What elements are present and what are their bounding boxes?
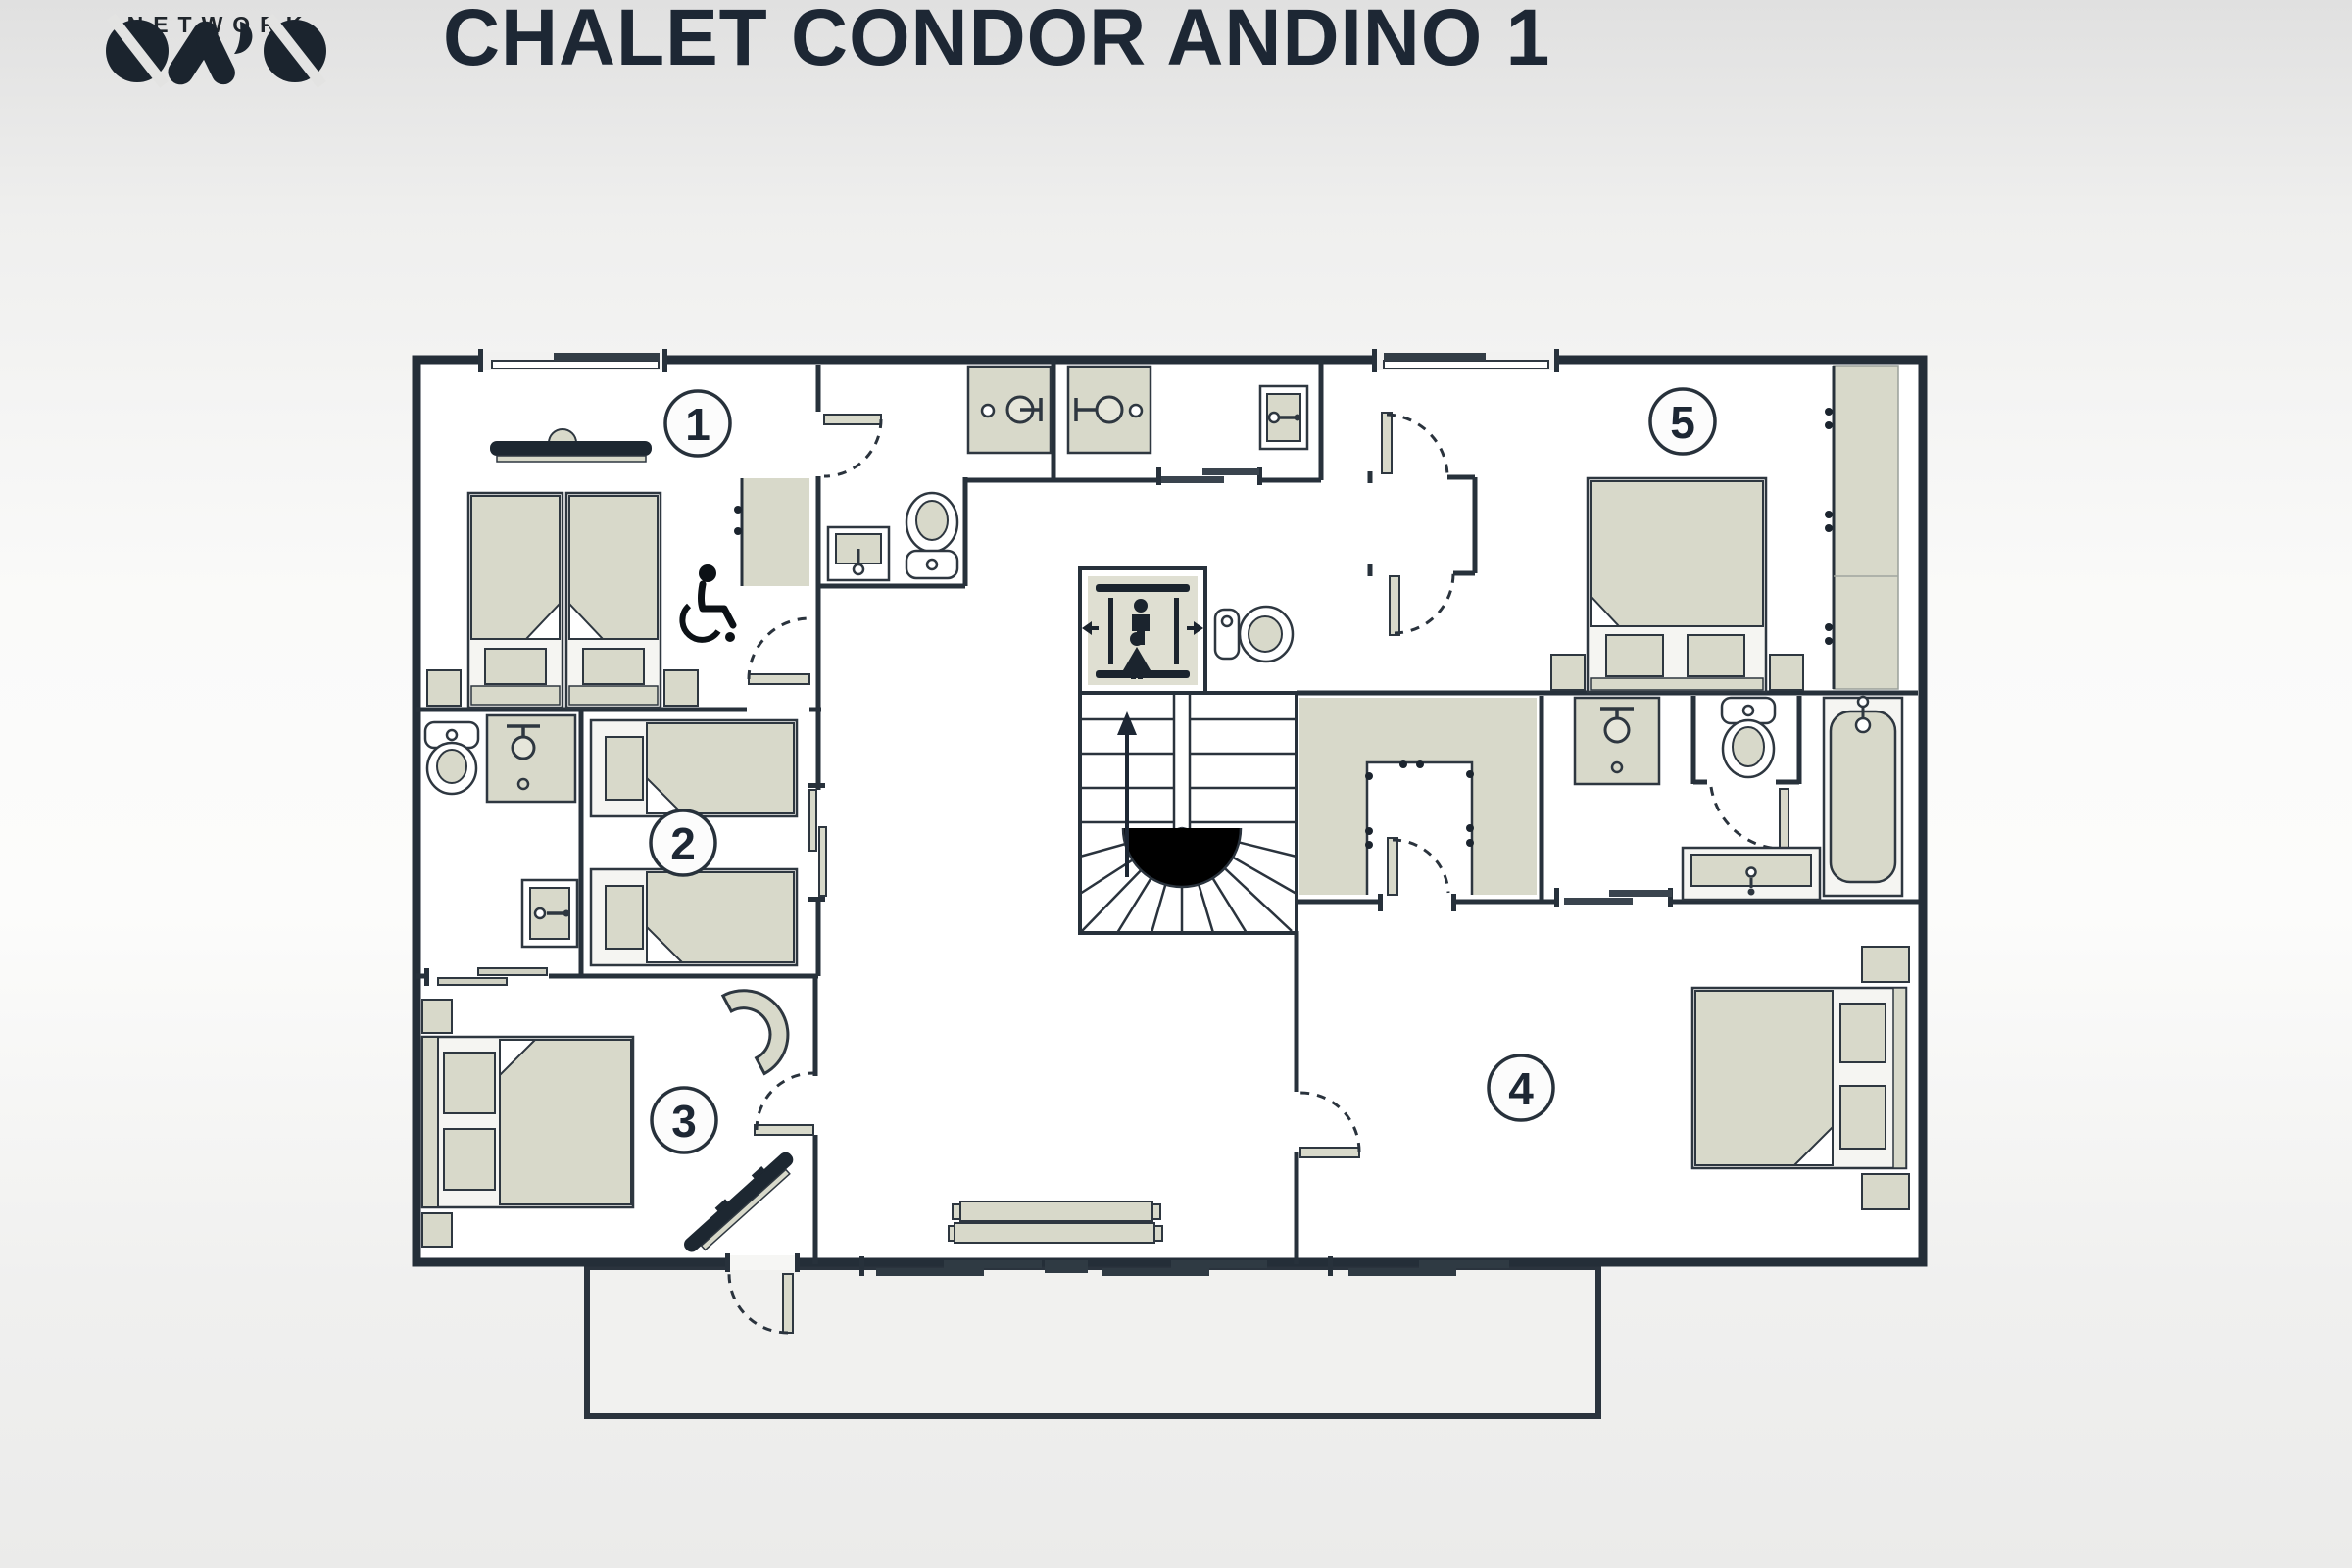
vanity-sink	[1683, 848, 1820, 900]
toilet-icon	[1215, 607, 1293, 661]
nightstand	[427, 670, 461, 706]
svg-text:3: 3	[671, 1096, 697, 1147]
nightstand	[1551, 655, 1585, 690]
window-top-right	[1372, 349, 1559, 372]
sink-icon	[828, 527, 889, 580]
shower-icon	[1575, 698, 1659, 784]
floor-plan: 1 2 3 4 5	[0, 0, 2352, 1568]
nightstand	[422, 1000, 452, 1033]
bathtub-icon	[1824, 697, 1902, 896]
sink-icon	[522, 880, 577, 947]
window-top-left	[478, 349, 667, 372]
staircase	[1080, 693, 1297, 933]
double-bed	[1692, 988, 1906, 1168]
room-label-3: 3	[652, 1088, 716, 1152]
room-label-4: 4	[1489, 1055, 1553, 1120]
wardrobe-tall	[1825, 366, 1898, 689]
nightstand	[422, 1213, 452, 1247]
nightstand	[664, 670, 698, 706]
nightstand	[1862, 947, 1909, 982]
shower-icon	[1068, 367, 1151, 453]
svg-text:5: 5	[1670, 397, 1695, 448]
shower-icon	[968, 367, 1051, 453]
shower-icon	[487, 715, 575, 802]
svg-text:4: 4	[1508, 1063, 1534, 1114]
nightstand	[1770, 655, 1803, 690]
room-label-5: 5	[1650, 389, 1715, 454]
elevator	[1080, 568, 1205, 693]
single-bed	[468, 493, 563, 708]
bench	[949, 1201, 1162, 1243]
nightstand	[1862, 1174, 1909, 1209]
toilet-icon	[906, 493, 957, 578]
toilet-icon	[425, 722, 478, 794]
elevator-person-icon	[1134, 599, 1148, 612]
twin-bed	[591, 869, 797, 965]
double-bed	[422, 1037, 633, 1207]
room-label-1: 1	[665, 391, 730, 456]
terrace	[587, 1267, 1598, 1416]
page: NETWORK CHALET CONDOR ANDINO 1	[0, 0, 2352, 1568]
wardrobe	[734, 478, 809, 586]
single-bed	[566, 493, 661, 708]
toilet-icon	[1722, 698, 1775, 777]
double-bed	[1588, 478, 1766, 692]
twin-bed	[591, 720, 797, 816]
svg-text:2: 2	[670, 818, 696, 869]
room-label-2: 2	[651, 810, 715, 875]
svg-text:1: 1	[685, 399, 710, 450]
sink-icon	[1260, 386, 1307, 449]
